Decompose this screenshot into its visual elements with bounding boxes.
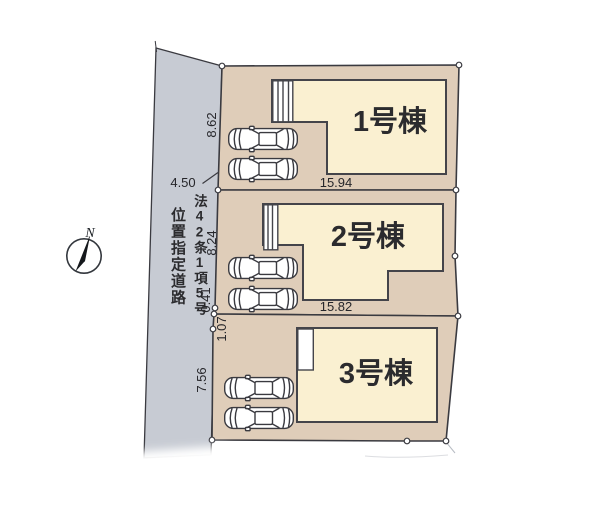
boundary-vertex: [453, 187, 459, 193]
north-label: N: [84, 226, 95, 241]
building-3-label: 3号棟: [339, 357, 414, 390]
car: [229, 156, 298, 181]
dimension-label: 7.56: [194, 367, 209, 392]
building-1-label: 1号棟: [353, 105, 428, 138]
boundary-vertex: [455, 313, 461, 319]
car: [229, 126, 298, 151]
dimension-label: 1.07: [214, 316, 229, 341]
boundary-vertex: [215, 187, 221, 193]
dimension-label: 15.94: [320, 175, 353, 190]
building-2-porch: [264, 205, 278, 250]
car: [229, 286, 298, 311]
car: [225, 375, 294, 400]
road-designation-line1: 法42条1項5号: [189, 194, 209, 316]
boundary-vertex: [443, 438, 449, 444]
faint-ground-line: [365, 455, 448, 457]
boundary-vertex: [212, 305, 218, 311]
dimension-label: 15.82: [320, 299, 353, 314]
road-designation-line2: 位置指定道路: [167, 207, 188, 306]
road-fade: [125, 445, 229, 482]
building-2-label: 2号棟: [331, 220, 406, 253]
compass: N: [67, 226, 101, 273]
car: [225, 405, 294, 430]
boundary-vertex: [209, 437, 215, 443]
boundary-vertex: [219, 63, 225, 69]
boundary-vertex: [456, 62, 462, 68]
site-plan: 1号棟 2号棟 3号棟 8.62 4.50 15.94 8.24 0.41 1.…: [0, 0, 600, 508]
building-1-porch: [273, 81, 293, 122]
building-3-porch: [298, 329, 314, 370]
site-plan-drawing: 1号棟 2号棟 3号棟 8.62 4.50 15.94 8.24 0.41 1.…: [0, 0, 600, 508]
dimension-label: 4.50: [170, 175, 195, 190]
car: [229, 255, 298, 280]
boundary-vertex: [452, 253, 458, 259]
boundary-vertex: [404, 438, 410, 444]
dimension-label: 8.62: [204, 112, 219, 137]
